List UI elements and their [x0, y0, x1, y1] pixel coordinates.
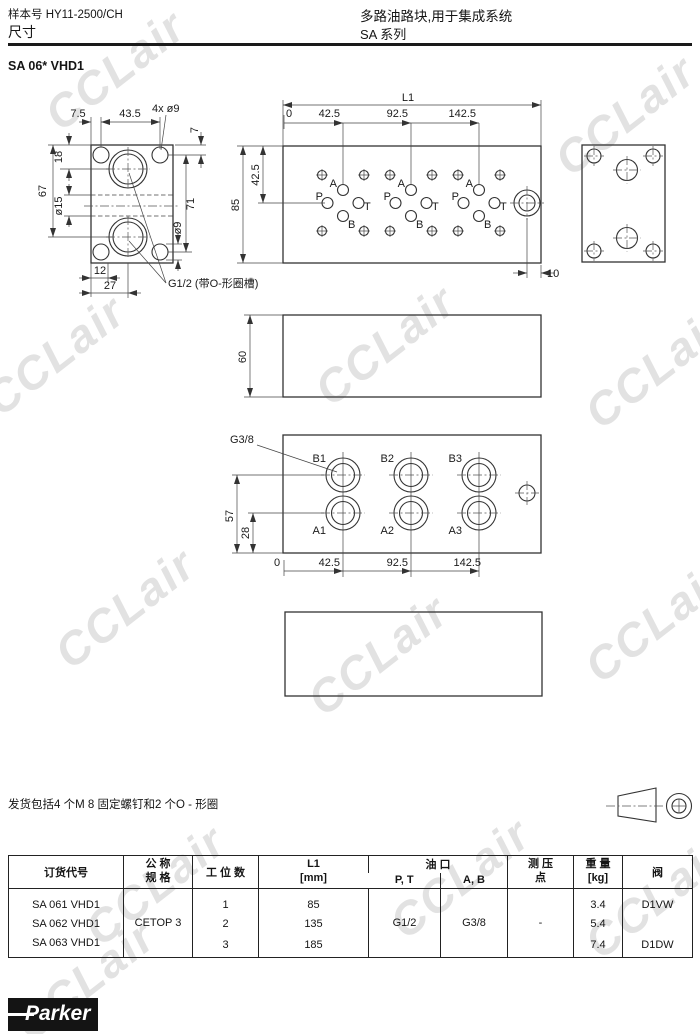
cell-weight: 3.4: [574, 889, 623, 915]
parker-logo-text: Parker: [25, 1002, 90, 1026]
dim-top-l1: L1: [402, 92, 414, 104]
port-label-a1: A1: [313, 525, 326, 537]
dim-ports-142-5: 142.5: [453, 557, 481, 569]
col-oil-ports: 油 口: [369, 856, 508, 873]
table-row: SA 061 VHD1 CETOP 3 1 85 G1/2 G3/8 - 3.4…: [9, 889, 693, 915]
cell-l1: 135: [259, 914, 369, 933]
col-weight: 重 量 [kg]: [574, 856, 623, 889]
dim-ports-28: 28: [240, 527, 252, 539]
col-weight-line2: [kg]: [574, 872, 622, 886]
col-gauge-line1: 测 压: [508, 858, 573, 872]
side-view: [582, 145, 665, 262]
col-stations: 工 位 数: [193, 856, 259, 889]
cell-weight: 5.4: [574, 914, 623, 933]
dim-top-42-5: 42.5: [319, 108, 340, 120]
cell-order-code: SA 062 VHD1: [9, 914, 124, 933]
bottom-face-view: [285, 612, 542, 696]
port-label-a2: A2: [381, 525, 394, 537]
col-oil-pt: P, T: [369, 873, 441, 889]
cell-stations: 2: [193, 914, 259, 933]
datasheet-page: CCLair CCLair CCLair CCLair CCLair CCLai…: [0, 0, 700, 1034]
accessory-icons: [0, 780, 700, 840]
dim-top-42-5-left: 42.5: [250, 164, 262, 185]
cell-stations: 3: [193, 933, 259, 958]
parker-logo: Parker: [8, 998, 98, 1031]
col-order-code: 订货代号: [9, 856, 124, 889]
ports-view: B1 B2 B3 A1 A2 A3 G3/8 57 28 0 42.5 92.5…: [224, 434, 541, 577]
col-oil-ab: A, B: [441, 873, 508, 889]
dim-front-43-5: 43.5: [119, 108, 140, 120]
label-g12-port: G1/2 (带O-形圈槽): [168, 277, 258, 290]
cell-spec: CETOP 3: [124, 889, 193, 958]
col-nominal-spec: 公 称 规 格: [124, 856, 193, 889]
dim-top-10: 10: [547, 268, 559, 280]
dim-front-o15: ø15: [53, 197, 65, 216]
dim-ports-92-5: 92.5: [387, 557, 408, 569]
dim-front-67: 67: [37, 185, 49, 197]
dim-top-85: 85: [230, 199, 242, 211]
o-ring-icon: [667, 794, 692, 819]
table-row: SA 063 VHD1 3 185 7.4 D1DW: [9, 933, 693, 958]
col-l1-line1: L1: [259, 858, 368, 872]
dim-ports-57: 57: [224, 510, 236, 522]
dim-top-142-5: 142.5: [448, 108, 476, 120]
cell-valve: D1DW: [623, 933, 693, 958]
dim-front-12: 12: [94, 265, 106, 277]
front-view: 7.5 43.5 4x ø9 7 18 ø15 67 71: [37, 103, 258, 298]
dim-top-92-5: 92.5: [387, 108, 408, 120]
col-valve: 阀: [623, 856, 693, 889]
cell-valve: [623, 914, 693, 933]
dim-front-71: 71: [185, 198, 197, 210]
col-l1-line2: [mm]: [259, 872, 368, 886]
cell-valve: D1VW: [623, 889, 693, 915]
col-nominal-spec-line2: 规 格: [124, 872, 192, 886]
technical-drawing: A P T B: [0, 0, 700, 790]
dim-front-7-5: 7.5: [70, 108, 85, 120]
cell-l1: 85: [259, 889, 369, 915]
cell-port-pt: G1/2: [369, 889, 441, 958]
cell-gauge: -: [508, 889, 574, 958]
cell-l1: 185: [259, 933, 369, 958]
dim-front-holes: 4x ø9: [152, 103, 180, 115]
order-table: 订货代号 公 称 规 格 工 位 数 L1 [mm] 油 口 测 压 点: [8, 855, 693, 958]
dim-front-27: 27: [104, 280, 116, 292]
dim-ports-42-5: 42.5: [319, 557, 340, 569]
cell-weight: 7.4: [574, 933, 623, 958]
top-view: L1 0 42.5 92.5 142.5 85 42.5: [230, 92, 559, 280]
table-row: SA 062 VHD1 2 135 5.4: [9, 914, 693, 933]
col-weight-line1: 重 量: [574, 858, 622, 872]
col-l1: L1 [mm]: [259, 856, 369, 889]
front-face-view: 60: [237, 315, 541, 397]
col-gauge-point: 测 压 点: [508, 856, 574, 889]
port-label-b2: B2: [381, 453, 394, 465]
col-gauge-line2: 点: [508, 872, 573, 886]
port-label-b1: B1: [313, 453, 326, 465]
cell-stations: 1: [193, 889, 259, 915]
dim-mid-60: 60: [237, 351, 249, 363]
plug-icon: [606, 788, 664, 822]
port-label-b3: B3: [449, 453, 462, 465]
dim-front-7: 7: [189, 127, 201, 133]
dim-ports-0: 0: [274, 557, 280, 569]
label-g38-port: G3/8: [230, 434, 254, 446]
col-nominal-spec-line1: 公 称: [124, 858, 192, 872]
port-label-a3: A3: [449, 525, 462, 537]
dim-front-o9: ø9: [172, 222, 184, 235]
cell-port-ab: G3/8: [441, 889, 508, 958]
cell-order-code: SA 063 VHD1: [9, 933, 124, 958]
dim-top-0: 0: [286, 108, 292, 120]
cell-order-code: SA 061 VHD1: [9, 889, 124, 915]
dim-front-18: 18: [53, 151, 65, 163]
